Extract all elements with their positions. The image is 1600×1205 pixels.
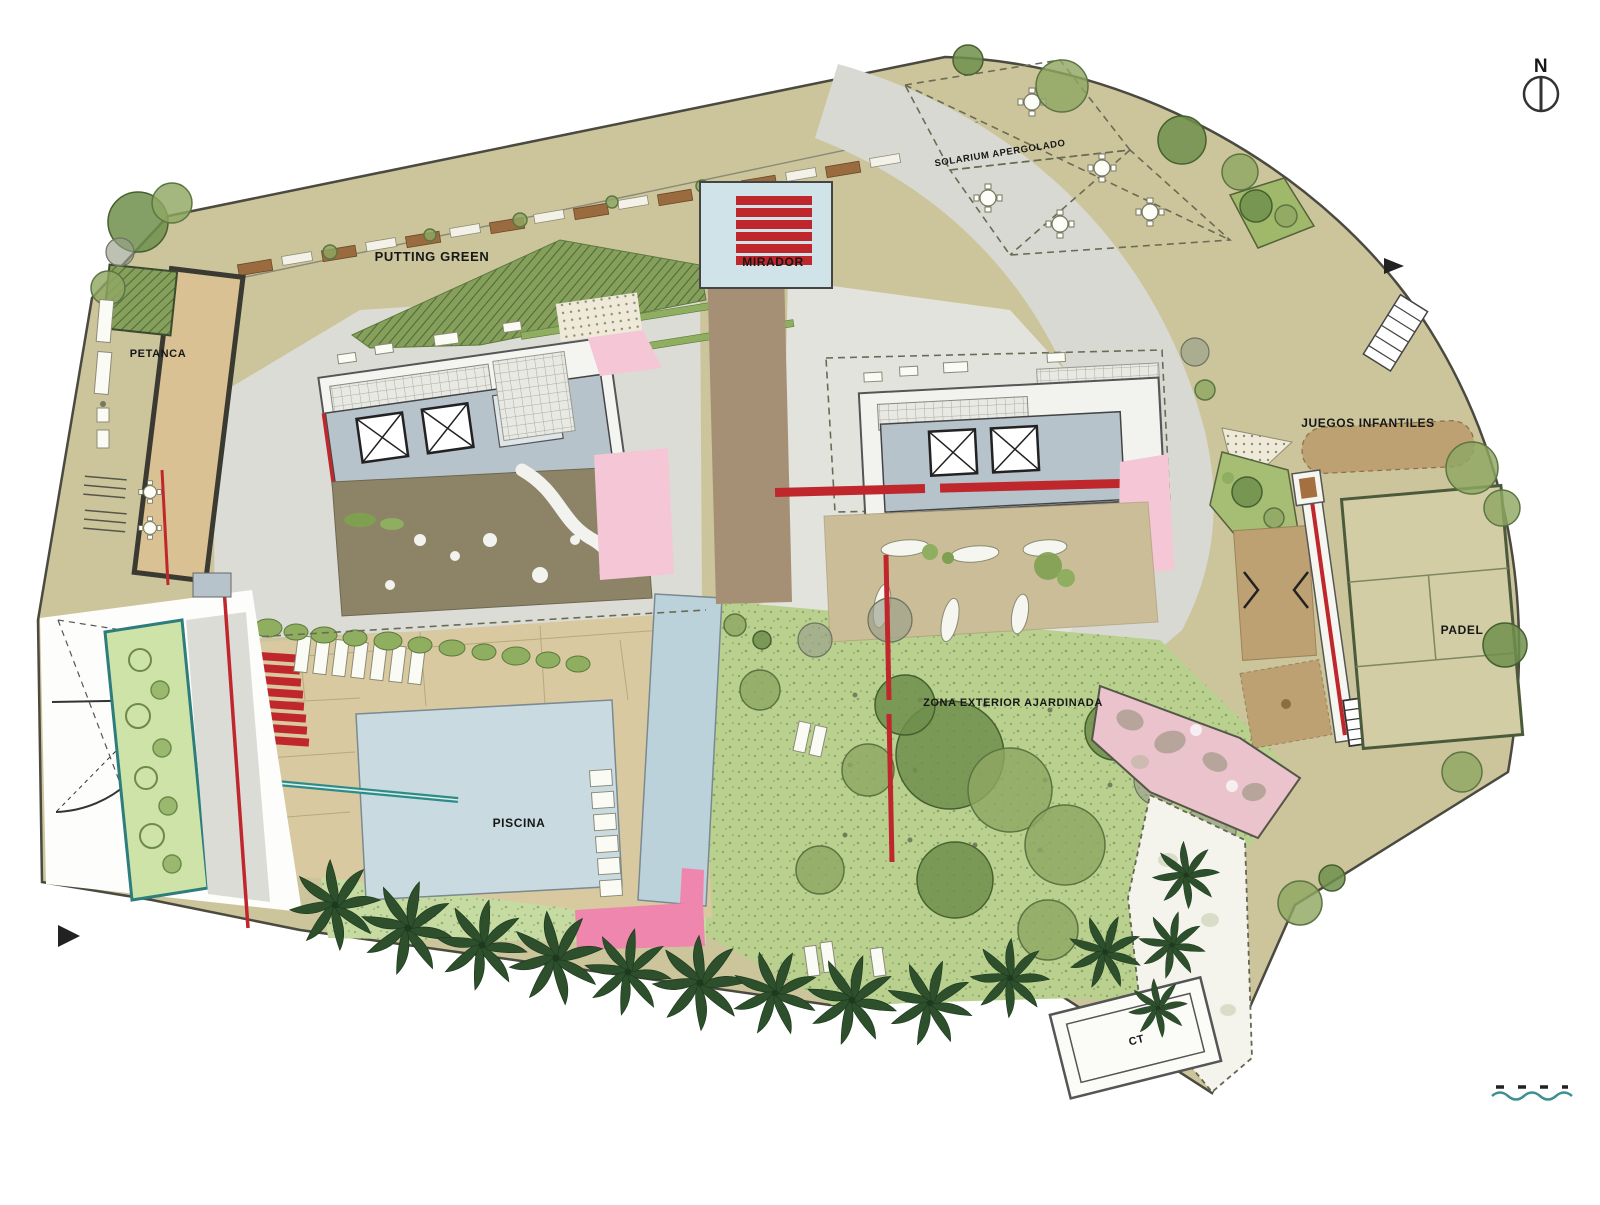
north-label: N bbox=[1534, 56, 1548, 77]
label-putting-green: PUTTING GREEN bbox=[375, 249, 490, 264]
site-plan: CT bbox=[0, 0, 1600, 1200]
entrance-slab bbox=[193, 573, 231, 597]
left-building-tiles bbox=[493, 351, 575, 440]
label-piscina: PISCINA bbox=[493, 816, 546, 830]
label-juegos-infantiles: JUEGOS INFANTILES bbox=[1301, 416, 1435, 430]
site-plan-page: CT bbox=[0, 0, 1600, 1200]
label-padel: PADEL bbox=[1441, 623, 1484, 637]
main-pool bbox=[356, 700, 622, 900]
north-indicator: N bbox=[1524, 56, 1558, 111]
water-mark bbox=[1492, 1087, 1572, 1100]
label-mirador: MIRADOR bbox=[742, 255, 804, 269]
label-petanca: PETANCA bbox=[130, 348, 187, 360]
arc-marker bbox=[1384, 258, 1404, 274]
label-zona-exterior: ZONA EXTERIOR AJARDINADA bbox=[923, 697, 1103, 709]
